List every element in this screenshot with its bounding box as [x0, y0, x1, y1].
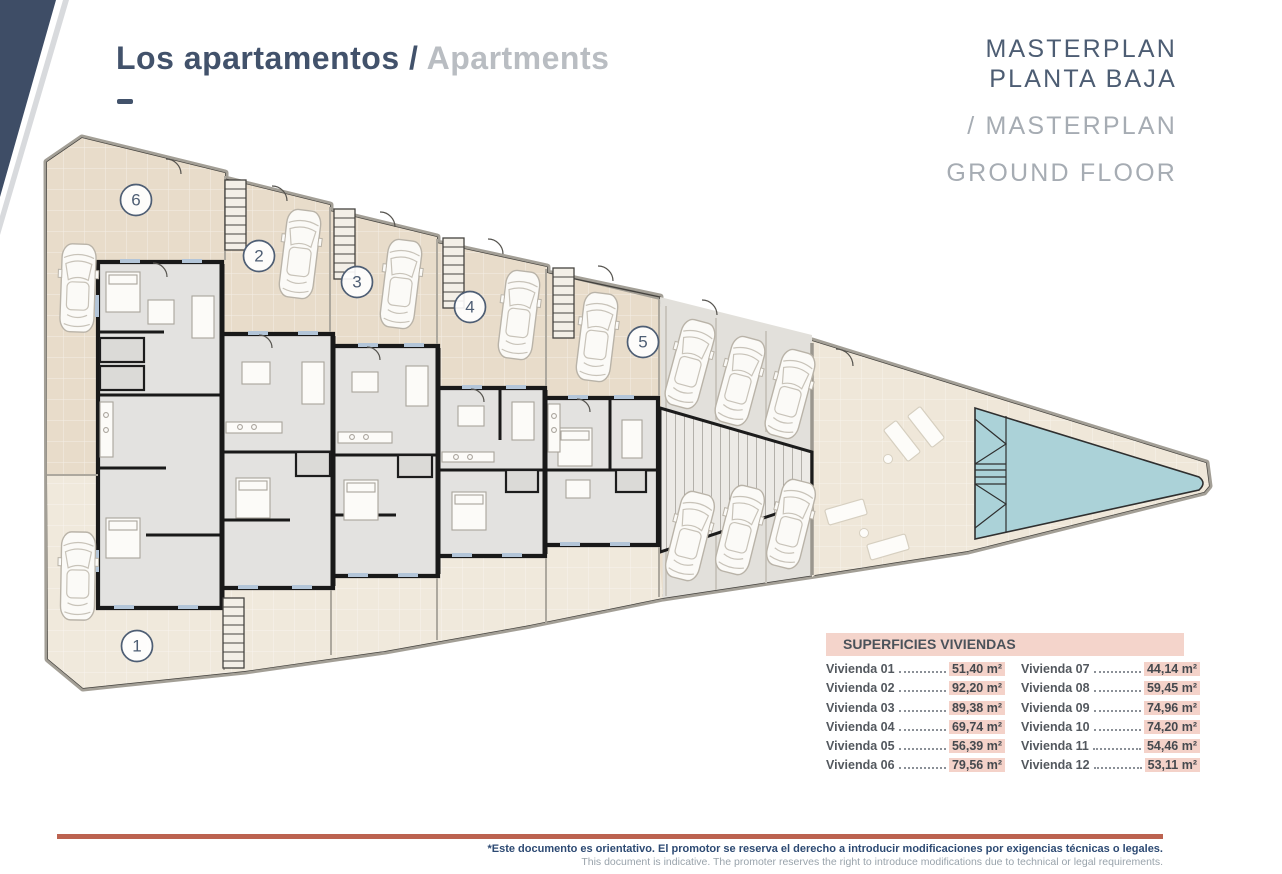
vivienda-area: 59,45 m²: [1144, 681, 1200, 695]
vivienda-area: 74,20 m²: [1144, 720, 1200, 734]
table-row: Vivienda 0859,45 m²: [1021, 681, 1200, 700]
unit-marker-6: 6: [121, 185, 152, 216]
unit-marker-label: 6: [131, 191, 140, 210]
leader-dots: [899, 690, 946, 692]
vivienda-area: 51,40 m²: [949, 662, 1005, 676]
vivienda-label: Vivienda 01: [826, 662, 895, 676]
unit-marker-1: 1: [122, 631, 153, 662]
vivienda-area: 79,56 m²: [949, 758, 1005, 772]
vivienda-label: Vivienda 03: [826, 701, 895, 715]
vivienda-label: Vivienda 06: [826, 758, 895, 772]
areas-table: SUPERFICIES VIVIENDAS Vivienda 0151,40 m…: [826, 633, 1200, 778]
unit-marker-label: 4: [465, 298, 474, 317]
leader-dots: [1094, 710, 1141, 712]
areas-column-right: Vivienda 0744,14 m² Vivienda 0859,45 m² …: [1021, 662, 1200, 778]
leader-dots: [899, 729, 946, 731]
vivienda-area: 74,96 m²: [1144, 701, 1200, 715]
unit-marker-label: 2: [254, 247, 263, 266]
table-row: Vivienda 0974,96 m²: [1021, 701, 1200, 720]
vivienda-area: 92,20 m²: [949, 681, 1005, 695]
vivienda-label: Vivienda 11: [1021, 739, 1089, 753]
vivienda-label: Vivienda 10: [1021, 720, 1090, 734]
table-row: Vivienda 0679,56 m²: [826, 758, 1005, 777]
table-row: Vivienda 0744,14 m²: [1021, 662, 1200, 681]
table-row: Vivienda 0469,74 m²: [826, 720, 1005, 739]
leader-dots: [899, 671, 946, 673]
masterplan-page: { "header": { "title_primary": "Los apar…: [0, 0, 1282, 874]
vivienda-area: 54,46 m²: [1144, 739, 1200, 753]
unit-marker-3: 3: [342, 267, 373, 298]
leader-dots: [899, 710, 946, 712]
vivienda-area: 44,14 m²: [1144, 662, 1200, 676]
leader-dots: [1093, 748, 1141, 750]
leader-dots: [899, 748, 946, 750]
footer-accent-line: [57, 834, 1163, 839]
unit-marker-label: 5: [638, 333, 647, 352]
vivienda-area: 89,38 m²: [949, 701, 1005, 715]
car-icon: [56, 243, 99, 332]
leader-dots: [1094, 729, 1141, 731]
car-icon: [57, 532, 99, 621]
table-row: Vivienda 0292,20 m²: [826, 681, 1005, 700]
footer-disclaimer: *Este documento es orientativo. El promo…: [487, 843, 1163, 868]
vivienda-area: 69,74 m²: [949, 720, 1005, 734]
areas-table-title: SUPERFICIES VIVIENDAS: [826, 633, 1184, 656]
unit-marker-label: 3: [352, 273, 361, 292]
table-row: Vivienda 0151,40 m²: [826, 662, 1005, 681]
vivienda-label: Vivienda 09: [1021, 701, 1090, 715]
leader-dots: [899, 767, 946, 769]
vivienda-label: Vivienda 12: [1021, 758, 1090, 772]
vivienda-label: Vivienda 02: [826, 681, 895, 695]
vivienda-label: Vivienda 07: [1021, 662, 1090, 676]
unit-marker-4: 4: [455, 292, 486, 323]
leader-dots: [1094, 690, 1141, 692]
vivienda-label: Vivienda 04: [826, 720, 895, 734]
areas-column-left: Vivienda 0151,40 m² Vivienda 0292,20 m² …: [826, 662, 1005, 778]
unit-marker-2: 2: [244, 241, 275, 272]
table-row: Vivienda 1253,11 m²: [1021, 758, 1200, 777]
vivienda-area: 56,39 m²: [949, 739, 1005, 753]
leader-dots: [1094, 767, 1142, 769]
disclaimer-es: *Este documento es orientativo. El promo…: [487, 843, 1163, 856]
table-row: Vivienda 1154,46 m²: [1021, 739, 1200, 758]
table-row: Vivienda 1074,20 m²: [1021, 720, 1200, 739]
table-row: Vivienda 0389,38 m²: [826, 701, 1005, 720]
unit-marker-5: 5: [628, 327, 659, 358]
table-row: Vivienda 0556,39 m²: [826, 739, 1005, 758]
vivienda-area: 53,11 m²: [1145, 758, 1200, 772]
unit-marker-label: 1: [132, 637, 141, 656]
leader-dots: [1094, 671, 1141, 673]
disclaimer-en: This document is indicative. The promote…: [487, 856, 1163, 868]
vivienda-label: Vivienda 05: [826, 739, 895, 753]
vivienda-label: Vivienda 08: [1021, 681, 1090, 695]
